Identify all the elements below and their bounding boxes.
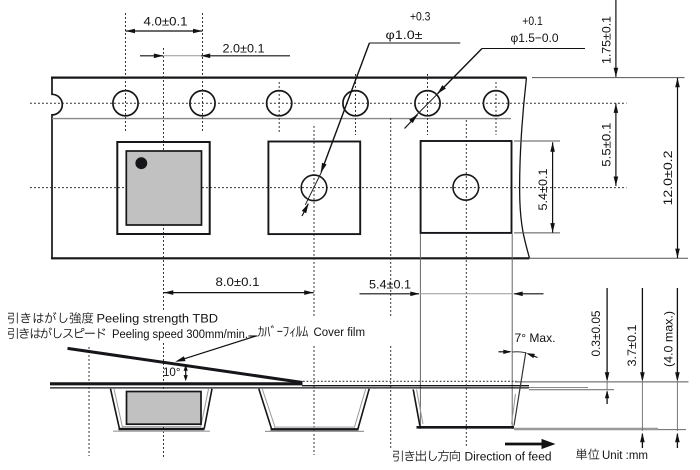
- svg-text:Peeling strength TBD: Peeling strength TBD: [97, 312, 219, 326]
- svg-text:Direction of feed: Direction of feed: [465, 450, 552, 464]
- svg-text:1.75±0.1: 1.75±0.1: [600, 16, 614, 64]
- svg-text:5.4±0.1: 5.4±0.1: [369, 277, 411, 291]
- svg-text:5.4±0.1: 5.4±0.1: [536, 169, 550, 211]
- svg-text:12.0±0.2: 12.0±0.2: [661, 151, 675, 206]
- svg-text:2.0±0.1: 2.0±0.1: [223, 42, 265, 56]
- svg-text:10°: 10°: [163, 365, 181, 379]
- svg-text:4.0±0.1: 4.0±0.1: [144, 14, 188, 28]
- svg-text:Peeling speed 300mm/min.: Peeling speed 300mm/min.: [112, 327, 248, 341]
- svg-text:7° Max.: 7° Max.: [515, 331, 556, 345]
- svg-text:+0.1: +0.1: [522, 15, 543, 28]
- svg-text:φ1.0±: φ1.0±: [386, 28, 423, 42]
- svg-text:3.7±0.1: 3.7±0.1: [625, 325, 639, 367]
- svg-text:(4.0 max.): (4.0 max.): [662, 311, 676, 367]
- svg-text:Cover film: Cover film: [314, 325, 366, 339]
- svg-text:5.5±0.1: 5.5±0.1: [599, 123, 613, 167]
- svg-text:φ1.5−0.0: φ1.5−0.0: [511, 31, 559, 45]
- svg-text:+0.3: +0.3: [410, 11, 431, 24]
- svg-text:8.0±0.1: 8.0±0.1: [216, 275, 260, 289]
- svg-text:0.3±0.05: 0.3±0.05: [589, 310, 603, 356]
- svg-text:Unit :mm: Unit :mm: [602, 448, 648, 462]
